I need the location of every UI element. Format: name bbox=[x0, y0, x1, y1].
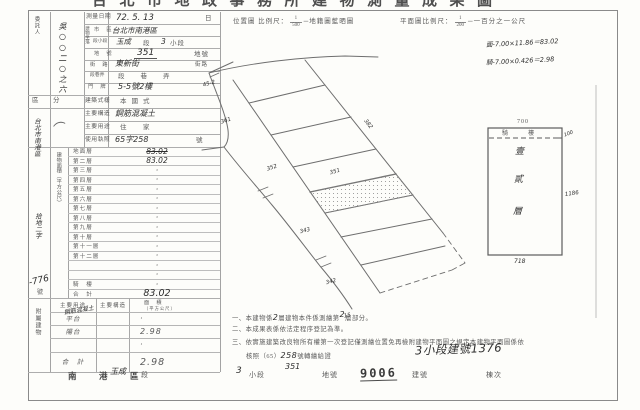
arcade-label: 騎 樓 bbox=[502, 131, 541, 137]
floorplan-outline bbox=[488, 85, 596, 318]
footer-section-handwritten: 玉成 bbox=[110, 368, 126, 376]
footer-lot-label: 地號 bbox=[322, 372, 338, 379]
scanned-survey-form: 台北市地政事務所建物測量成果圖 位置圖 比例尺： 1 500 ─地籍圖藍晒圖 平… bbox=[0, 0, 640, 410]
footer-district: 南 港 區 bbox=[68, 370, 146, 382]
parcel-boundaries bbox=[202, 56, 465, 309]
note-line-1: 一、本建物係2層建物本件係測繪第2層部分。 bbox=[232, 314, 372, 322]
floorplan-storey-char: 貳 bbox=[514, 176, 523, 185]
handwritten-building-number-note: 3小段建號1376 bbox=[415, 342, 502, 357]
floorplan-bottom-dimension: 718 bbox=[514, 259, 525, 265]
floorplan-storey-char: 層 bbox=[513, 208, 522, 217]
floorplan-storey-char: 壹 bbox=[515, 148, 524, 157]
footer-lot-handwritten: 351 bbox=[285, 363, 300, 371]
footer-unit-label: 棟次 bbox=[486, 372, 502, 379]
note-line-2: 二、本成果表係依法定程序登記為準。 bbox=[232, 327, 348, 333]
note-1-handwritten-floor-2: 2 bbox=[340, 310, 346, 319]
footer-building-number-label: 建號 bbox=[412, 372, 428, 379]
note-line-4: 核照（65）258號轉繪給證 bbox=[246, 352, 331, 360]
footer-subsection-label: 小段 bbox=[249, 372, 265, 379]
note-4-handwritten-license: 258 bbox=[280, 351, 297, 360]
footer-section-label: 段 bbox=[141, 372, 149, 379]
subject-parcel-hatched bbox=[310, 174, 413, 213]
footer-subsection-handwritten: 3 bbox=[236, 367, 242, 376]
site-plan-drawing bbox=[0, 0, 640, 410]
floorplan-top-dimension: 700 bbox=[517, 119, 529, 125]
building-number-stamp: 9006 bbox=[360, 366, 397, 382]
